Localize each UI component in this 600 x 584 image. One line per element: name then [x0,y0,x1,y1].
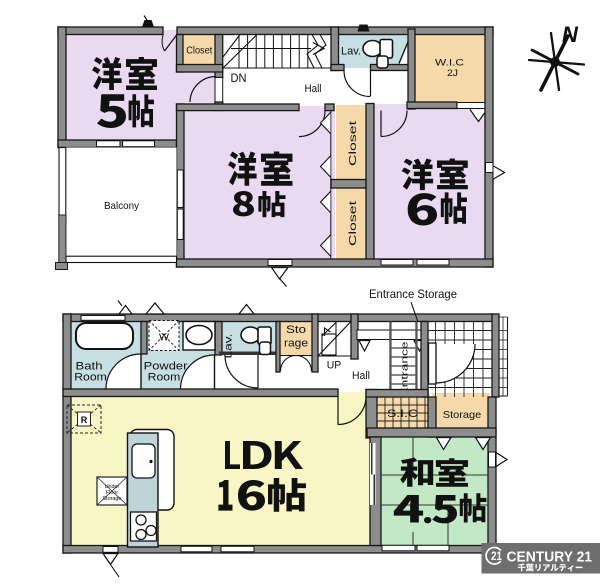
svg-text:N: N [562,22,579,47]
svg-text:21: 21 [491,549,502,563]
svg-text:Entrance Storage: Entrance Storage [369,287,457,301]
svg-text:Hall: Hall [305,83,322,95]
svg-text:Closet: Closet [347,201,359,246]
svg-text:W: W [159,332,169,344]
svg-text:Storage: Storage [443,409,482,421]
svg-text:UP: UP [327,359,342,371]
svg-text:Balcony: Balcony [104,200,140,212]
svg-text:Lav.: Lav. [224,334,235,359]
svg-text:R: R [81,415,88,425]
svg-text:Room: Room [148,372,181,384]
svg-text:S.I.C: S.I.C [387,408,418,420]
svg-text:Storage: Storage [103,496,122,502]
svg-text:Hall: Hall [352,370,370,382]
svg-text:W.I.C: W.I.C [435,58,464,69]
svg-text:Bath: Bath [76,360,103,372]
svg-text:2J: 2J [447,68,458,79]
svg-text:Entrance: Entrance [400,342,411,397]
svg-text:DN: DN [231,73,247,85]
svg-text:Closet: Closet [186,45,212,57]
svg-text:rage: rage [284,338,308,350]
svg-text:Powder: Powder [144,360,188,372]
svg-text:Room: Room [74,372,107,384]
svg-text:CENTURY 21: CENTURY 21 [507,550,593,566]
svg-text:Lav.: Lav. [341,46,361,58]
svg-text:Closet: Closet [347,121,359,166]
svg-text:Sto: Sto [286,324,306,336]
